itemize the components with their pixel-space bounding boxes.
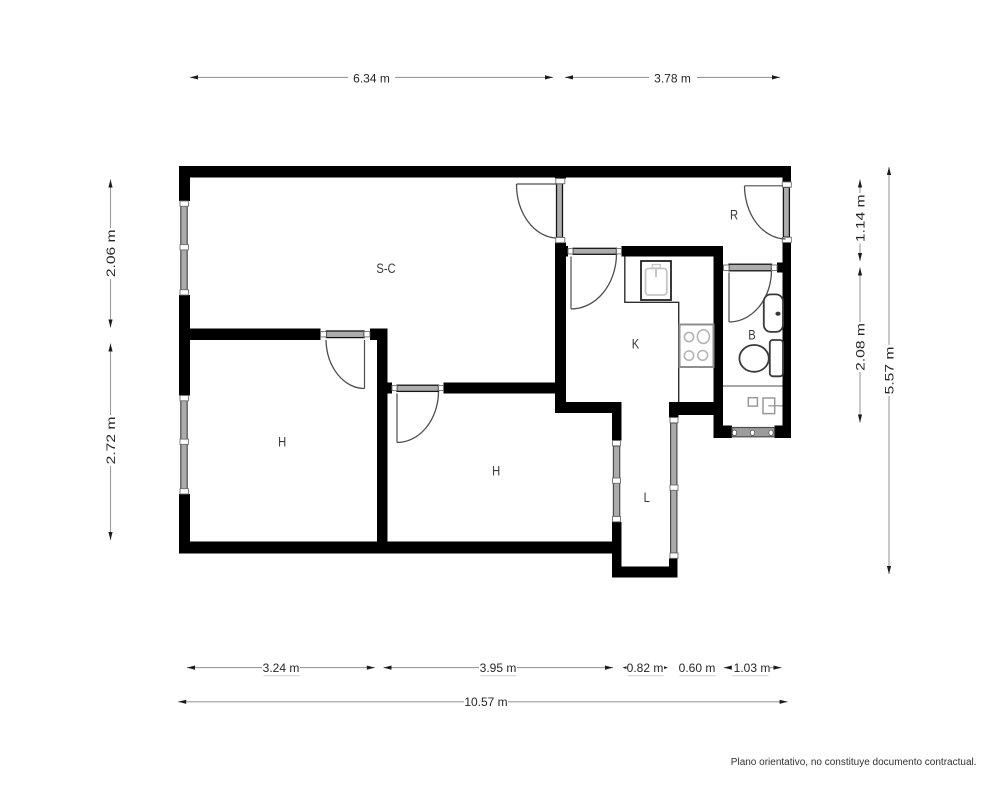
svg-text:L: L: [644, 490, 650, 505]
svg-text:2.72 m: 2.72 m: [104, 417, 118, 465]
svg-text:S-C: S-C: [376, 261, 395, 276]
svg-text:2.06 m: 2.06 m: [104, 229, 118, 277]
svg-text:2.08 m: 2.08 m: [853, 323, 867, 371]
svg-text:R: R: [730, 207, 738, 222]
svg-text:3.24 m: 3.24 m: [263, 661, 300, 675]
svg-text:B: B: [748, 328, 755, 343]
svg-text:3.95 m: 3.95 m: [480, 661, 517, 675]
svg-text:H: H: [278, 434, 286, 449]
svg-text:5.57 m: 5.57 m: [882, 347, 896, 395]
svg-text:10.57 m: 10.57 m: [464, 695, 507, 709]
svg-text:1.14 m: 1.14 m: [853, 194, 867, 242]
svg-text:3.78 m: 3.78 m: [654, 72, 691, 86]
svg-text:0.82 m: 0.82 m: [627, 661, 664, 675]
svg-text:K: K: [632, 336, 640, 351]
svg-text:0.60 m: 0.60 m: [679, 661, 716, 675]
svg-text:H: H: [492, 463, 500, 478]
svg-text:1.03 m: 1.03 m: [734, 661, 771, 675]
svg-text:Plano orientativo, no constitu: Plano orientativo, no constituye documen…: [731, 757, 977, 768]
svg-text:6.34 m: 6.34 m: [353, 72, 390, 86]
